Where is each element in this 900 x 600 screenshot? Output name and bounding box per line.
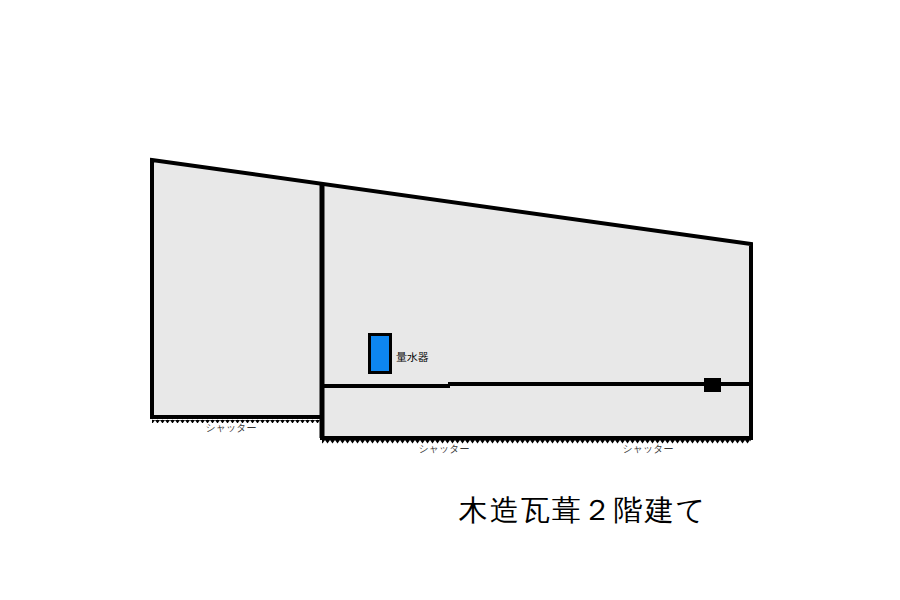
- water-meter-label: 量水器: [396, 351, 429, 363]
- wall-opening-marker: [704, 378, 721, 392]
- floor-plan-canvas: 量水器 シャッター シャッター シャッター 木造瓦葺２階建て: [0, 0, 900, 600]
- floor-plan-drawing: 量水器 シャッター シャッター シャッター 木造瓦葺２階建て: [0, 0, 900, 600]
- building-footprint: [152, 160, 751, 438]
- shutter-teeth-right: [322, 440, 751, 444]
- water-meter-box: [370, 335, 391, 373]
- shutter-label-right: シャッター: [623, 443, 674, 454]
- shutter-label-left: シャッター: [206, 422, 257, 433]
- shutter-label-middle: シャッター: [419, 443, 470, 454]
- building-description-title: 木造瓦葺２階建て: [459, 494, 708, 526]
